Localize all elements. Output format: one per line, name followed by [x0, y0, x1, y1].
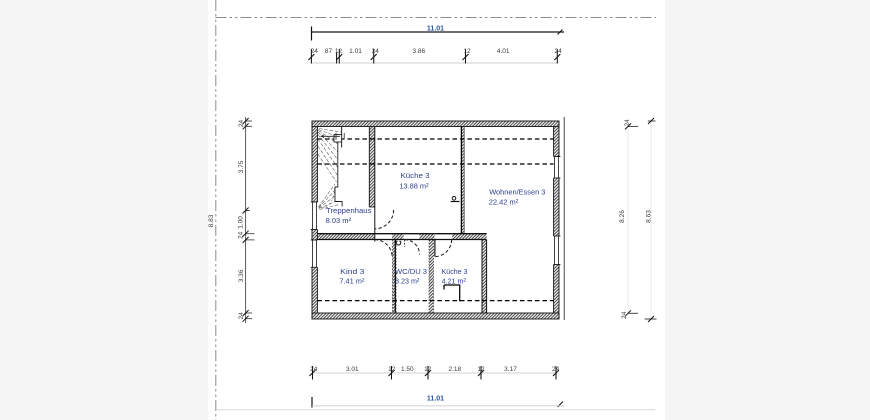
svg-text:8.26: 8.26	[619, 210, 626, 223]
svg-text:12: 12	[477, 366, 485, 373]
svg-text:24: 24	[552, 366, 560, 373]
svg-text:1.01: 1.01	[349, 48, 362, 55]
svg-text:13.88 m²: 13.88 m²	[399, 181, 429, 190]
svg-text:12: 12	[463, 48, 471, 55]
svg-text:11.01: 11.01	[427, 396, 444, 403]
svg-text:1.00: 1.00	[238, 216, 245, 229]
svg-text:8.03 m²: 8.03 m²	[326, 216, 352, 225]
svg-text:12: 12	[424, 366, 432, 373]
svg-text:Küche 3: Küche 3	[442, 267, 468, 276]
svg-text:24: 24	[624, 119, 631, 127]
svg-text:3.86: 3.86	[412, 48, 425, 55]
svg-text:3.75: 3.75	[238, 160, 245, 173]
svg-text:24: 24	[554, 48, 562, 55]
svg-text:WC/DU 3: WC/DU 3	[395, 267, 427, 276]
svg-text:4.01: 4.01	[497, 48, 510, 55]
svg-text:4.21 m²: 4.21 m²	[442, 277, 467, 286]
svg-text:1.50: 1.50	[401, 366, 414, 373]
svg-text:Wohnen/Essen 3: Wohnen/Essen 3	[489, 187, 545, 196]
svg-text:8.83: 8.83	[208, 214, 215, 227]
svg-text:3.23 m²: 3.23 m²	[395, 277, 420, 286]
svg-text:22.42 m²: 22.42 m²	[489, 197, 519, 206]
svg-text:Küche 3: Küche 3	[401, 171, 430, 180]
svg-text:24: 24	[311, 48, 319, 55]
svg-text:3.36: 3.36	[238, 269, 245, 282]
svg-text:Kind 3: Kind 3	[340, 267, 364, 276]
svg-text:24: 24	[238, 231, 245, 239]
svg-text:11.01: 11.01	[427, 26, 444, 33]
svg-text:24: 24	[621, 311, 628, 319]
svg-text:3.17: 3.17	[504, 366, 517, 373]
svg-text:24: 24	[310, 366, 318, 373]
svg-text:8.63: 8.63	[646, 210, 653, 223]
svg-text:12: 12	[335, 48, 343, 55]
svg-text:24: 24	[238, 120, 245, 128]
svg-text:87: 87	[325, 48, 333, 55]
svg-text:12: 12	[388, 366, 396, 373]
svg-text:Treppenhaus: Treppenhaus	[326, 206, 372, 215]
svg-text:24: 24	[372, 48, 380, 55]
svg-text:2.18: 2.18	[448, 366, 461, 373]
svg-text:24: 24	[238, 312, 245, 320]
svg-text:7.41 m²: 7.41 m²	[339, 277, 365, 286]
svg-text:3.01: 3.01	[346, 366, 359, 373]
